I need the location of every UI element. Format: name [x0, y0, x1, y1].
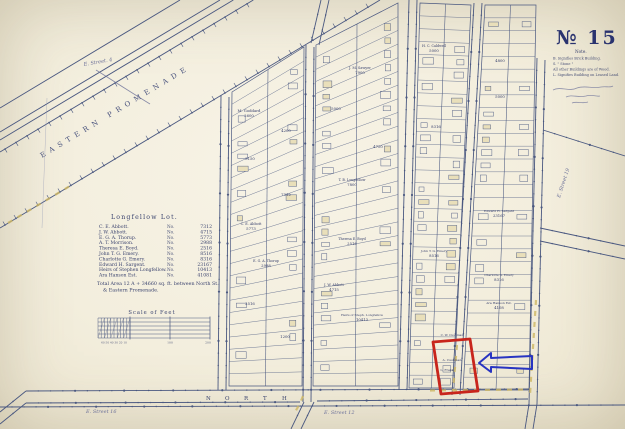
owner-area: 23167: [197, 262, 212, 268]
owner-no-abbrev: No.: [167, 235, 174, 240]
owner-no-abbrev: No.: [167, 229, 174, 234]
owner-area: 2516: [200, 246, 212, 252]
owner-no-abbrev: No.: [167, 246, 174, 251]
handwritten-street-label: E. Street. 4: [82, 57, 113, 68]
lot-label: 8316: [494, 277, 504, 282]
lot-label: 7900: [355, 70, 365, 75]
owner-area: 8316: [200, 256, 212, 262]
owner-name: C. E. Abbott.: [99, 224, 129, 230]
scale-mid-tick: 100: [167, 341, 173, 345]
total-area-line2: & Eastern Promenade.: [103, 288, 159, 294]
sheet-number: № 15: [556, 27, 618, 49]
lot-label: 2516: [347, 241, 357, 246]
owner-area: 8516: [200, 251, 212, 257]
pointer-arrow-annotation[interactable]: [479, 353, 532, 372]
scale-left-ticks: 60 50 40 30 20 10: [101, 341, 127, 345]
legend-line: All other Buildings are of Wood.: [552, 68, 610, 72]
lot-blocks: [229, 3, 536, 390]
lot-label: A. Cushman: [442, 358, 462, 362]
owner-no-abbrev: No.: [167, 251, 174, 256]
legend-line: B. Signifies Brick Building.: [553, 57, 601, 61]
north-street-letter: T: [263, 396, 267, 402]
lot-label: L. Frank: [440, 368, 453, 372]
lot-label: 8316: [431, 124, 441, 129]
total-area-line1: Total Area 12 A + 34660 sq. ft. between …: [97, 281, 219, 287]
lot-label: 4750: [373, 144, 383, 149]
lot-label: 2988: [261, 263, 271, 268]
pen-stroke-annotation: [96, 70, 150, 104]
lot-label: 4800: [495, 58, 505, 63]
lot-label: 2516: [245, 301, 255, 306]
lot-label: 2600: [244, 113, 254, 118]
north-street-letter: H: [282, 396, 287, 402]
owner-name: Theresa E. Boyd.: [99, 246, 139, 252]
plat-map: EASTERN PROMENADE Longfellow Lot. Total …: [0, 0, 625, 429]
lot-label: 3150: [245, 156, 255, 161]
legend-line: S. " Stone ": [553, 62, 574, 66]
lot-label: 1200: [280, 334, 290, 339]
owner-name: J. W. Abbott.: [98, 229, 128, 235]
north-street-letter: N: [206, 396, 211, 402]
owner-area: 4715: [200, 229, 212, 235]
street-name-eastern-promenade: EASTERN PROMENADE: [39, 64, 192, 160]
pier-line: [42, 98, 47, 228]
owner-table: Longfellow Lot. Total Area 12 A + 34660 …: [97, 214, 219, 294]
lot-label: 7800: [347, 182, 357, 187]
owner-name: Edward H. Sargent.: [99, 262, 146, 268]
handwritten-street-label: E. Street 16: [85, 409, 117, 415]
owner-name: Ara Hanson Est.: [98, 273, 138, 279]
owner-area: 10413: [197, 267, 212, 273]
owner-no-abbrev: No.: [167, 267, 174, 272]
lot-label: 4200: [281, 128, 291, 133]
owner-no-abbrev: No.: [167, 273, 174, 278]
lot-label: 5000: [429, 48, 439, 53]
owner-no-abbrev: No.: [167, 240, 174, 245]
owner-no-abbrev: No.: [167, 256, 174, 261]
owner-name: E. G. A. Thorup.: [99, 235, 137, 241]
north-street-letter: O: [225, 396, 230, 402]
legend-heading: Note.: [575, 49, 587, 54]
plat-map-sheet: EASTERN PROMENADE Longfellow Lot. Total …: [0, 0, 625, 429]
lot-label: 4715: [329, 287, 339, 292]
owner-table-title: Longfellow Lot.: [111, 214, 178, 221]
lot-label: C. W. Cushman: [441, 333, 464, 337]
handwritten-note: [553, 86, 613, 103]
scale-right-tick: 200: [205, 341, 211, 345]
legend-line: L. Signifies Building on Leased Land.: [553, 73, 619, 77]
owner-area: 5773: [200, 235, 212, 241]
owner-no-abbrev: No.: [167, 224, 174, 229]
lot-label: 23167: [493, 213, 506, 218]
owner-area: 2988: [200, 240, 212, 246]
handwritten-street-label: E. Street 12: [323, 410, 355, 416]
lot-label: 5000: [495, 94, 505, 99]
owner-area: 41081: [197, 273, 212, 279]
handwritten-street-label: E. Street 19: [556, 167, 572, 200]
lot-label: 5773: [246, 226, 256, 231]
lot-label: 8516: [429, 253, 439, 258]
owner-name: Charlotte G. Emery.: [99, 256, 146, 262]
owner-name: Heirs of Stephen Longfellow.: [99, 267, 167, 273]
north-street-letter: R: [244, 396, 249, 402]
lot-label: 7312: [281, 192, 291, 197]
owner-name: A. T. Morrison.: [98, 240, 134, 246]
lot-label: 5000: [331, 106, 341, 111]
lot-label: 10413: [356, 317, 369, 322]
lot-label: 4108: [494, 305, 504, 310]
map-legend: Note. B. Signifies Brick Building.S. " S…: [552, 49, 619, 77]
owner-area: 7312: [200, 224, 212, 230]
scale-bar-label: Scale of Feet: [128, 310, 175, 316]
owner-no-abbrev: No.: [167, 262, 174, 267]
scale-bar: Scale of Feet 60 50 40 30 20 10 100 200: [98, 310, 211, 345]
owner-name: John T. G. Emery.: [98, 251, 139, 257]
yellow-highlight-marks: [8, 186, 536, 412]
